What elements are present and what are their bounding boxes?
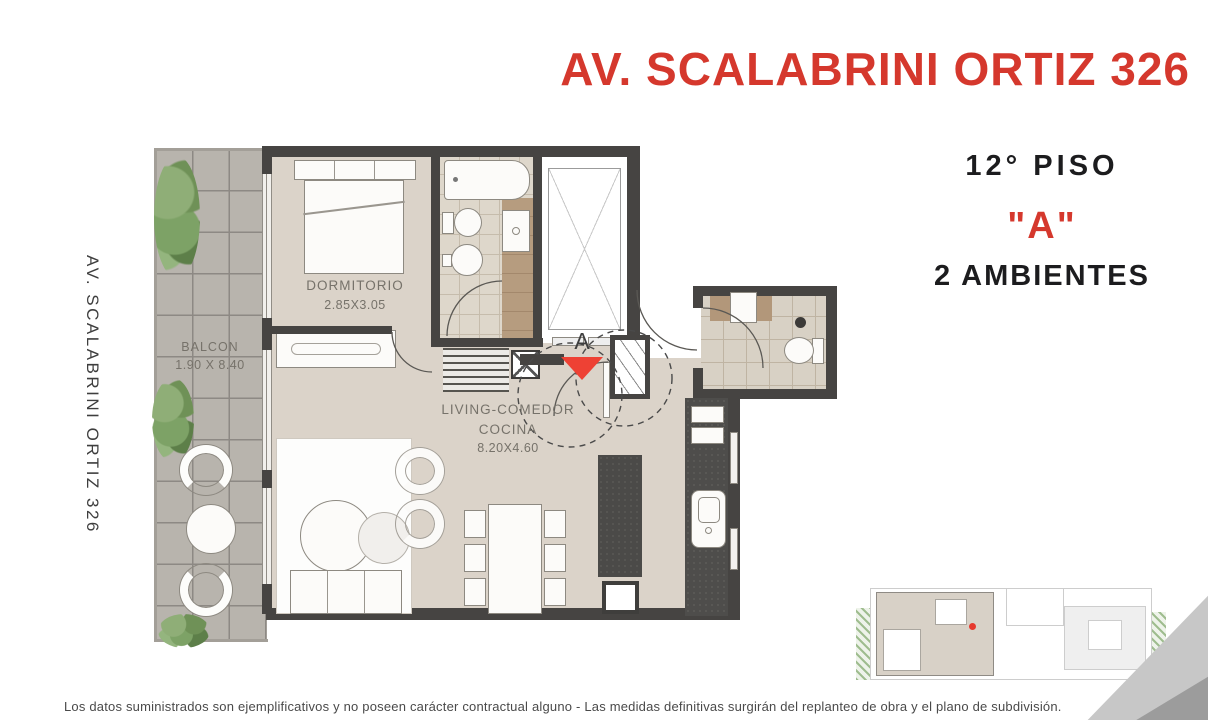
key-plan-thumbnail	[856, 580, 1166, 686]
thumb-unit-a	[876, 592, 994, 676]
thumb-room	[1088, 620, 1122, 650]
thumb-core	[1006, 588, 1064, 626]
street-side-label: AV. SCALABRINI ORTIZ 326	[82, 255, 102, 535]
bedroom-label: DORMITORIO 2.85X3.05	[265, 276, 445, 314]
door-swing-arcs	[150, 140, 835, 645]
room-name: BALCON	[158, 338, 262, 356]
bathroom2-door-arc	[703, 308, 763, 368]
room-dims: 1.90 X 8.40	[158, 356, 262, 374]
thumb-entry-marker	[969, 623, 976, 630]
bedroom-door-arc	[392, 332, 432, 372]
thumb-room	[935, 599, 967, 625]
balcony-label: BALCON 1.90 X 8.40	[158, 338, 262, 374]
disclaimer-text: Los datos suministrados son ejemplificat…	[64, 699, 1154, 714]
room-dims: 2.85X3.05	[265, 296, 445, 314]
flyer-page: AV. SCALABRINI ORTIZ 326 AV. SCALABRINI …	[0, 0, 1208, 720]
thumb-room	[883, 629, 921, 671]
bathroom1-door-arc	[447, 281, 502, 336]
living-label: LIVING-COMEDOR COCINA 8.20X4.60	[408, 400, 608, 457]
unit-letter-label: "A"	[918, 205, 1166, 248]
unit-info-block: 12° PISO "A" 2 AMBIENTES	[918, 150, 1166, 293]
page-title: AV. SCALABRINI ORTIZ 326	[520, 42, 1190, 96]
thumb-terrace-left	[856, 608, 870, 680]
room-name: COCINA	[408, 420, 608, 440]
room-dims: 8.20X4.60	[408, 439, 608, 457]
landing-door-arc	[637, 290, 697, 350]
rooms-count-label: 2 AMBIENTES	[918, 260, 1166, 293]
room-name: DORMITORIO	[265, 276, 445, 296]
floor-plan: A DORMITORIO 2.85X3.05 BALCON 1.90 X 8.4…	[150, 140, 835, 645]
entry-marker-letter: A	[564, 328, 600, 355]
room-name: LIVING-COMEDOR	[408, 400, 608, 420]
floor-number-label: 12° PISO	[918, 150, 1166, 183]
entry-marker-triangle	[561, 357, 603, 380]
